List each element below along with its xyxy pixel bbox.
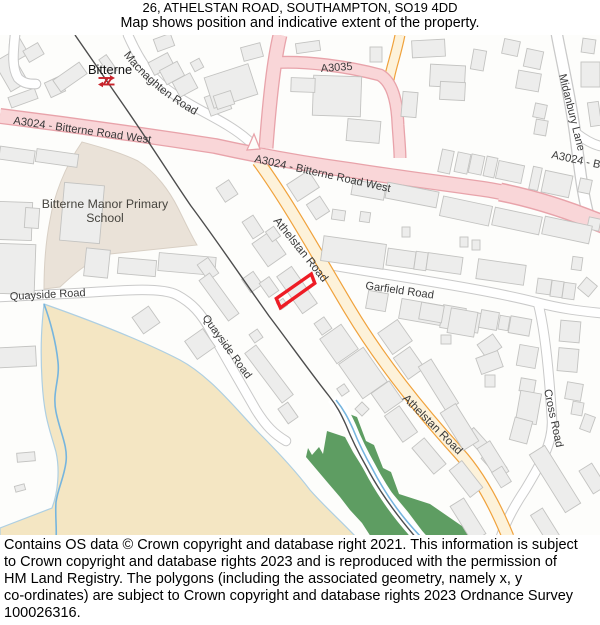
svg-text:A3035: A3035 <box>320 61 353 75</box>
svg-text:Bitterne Manor Primary: Bitterne Manor Primary <box>42 197 169 211</box>
svg-text:Bitterne: Bitterne <box>88 62 132 77</box>
svg-text:School: School <box>86 211 124 225</box>
